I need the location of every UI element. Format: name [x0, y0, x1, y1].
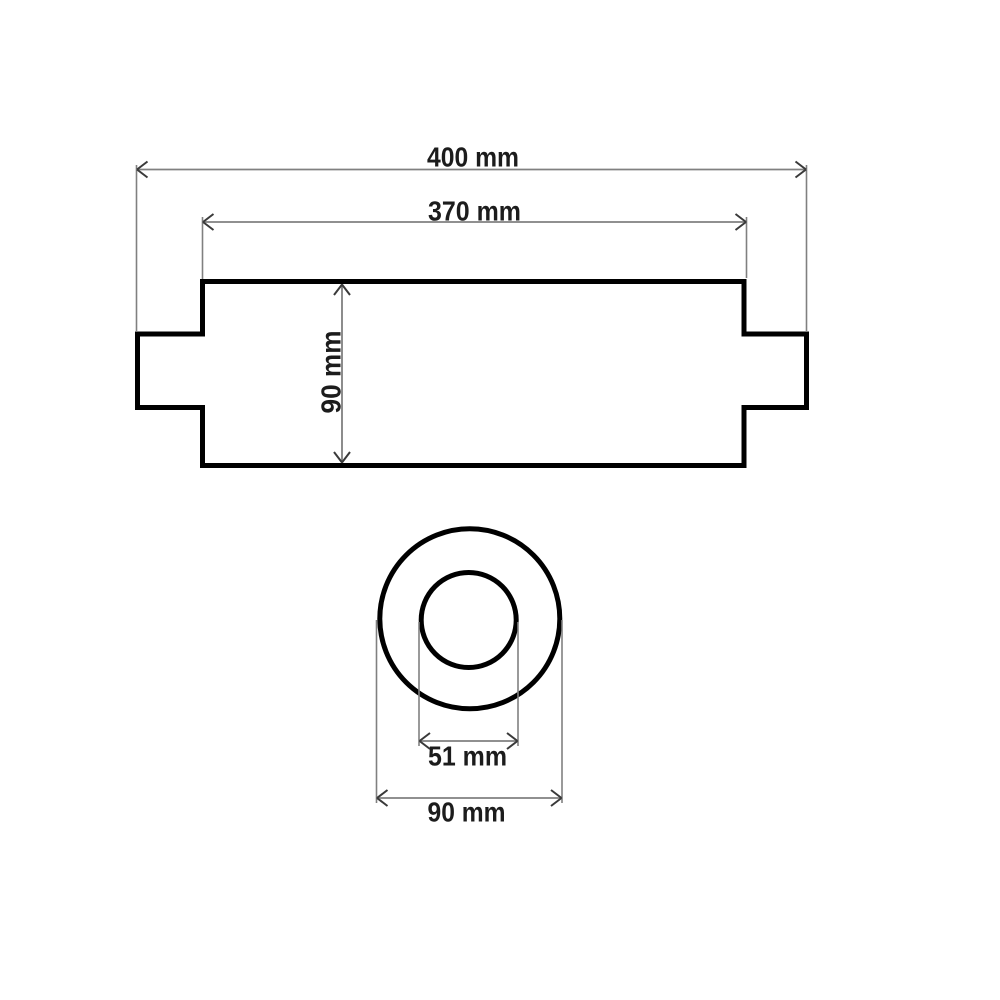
svg-text:90 mm: 90 mm [316, 331, 347, 414]
svg-text:400 mm: 400 mm [427, 142, 519, 173]
svg-text:51 mm: 51 mm [428, 741, 507, 772]
svg-text:90 mm: 90 mm [428, 797, 506, 828]
svg-text:370 mm: 370 mm [428, 196, 521, 227]
